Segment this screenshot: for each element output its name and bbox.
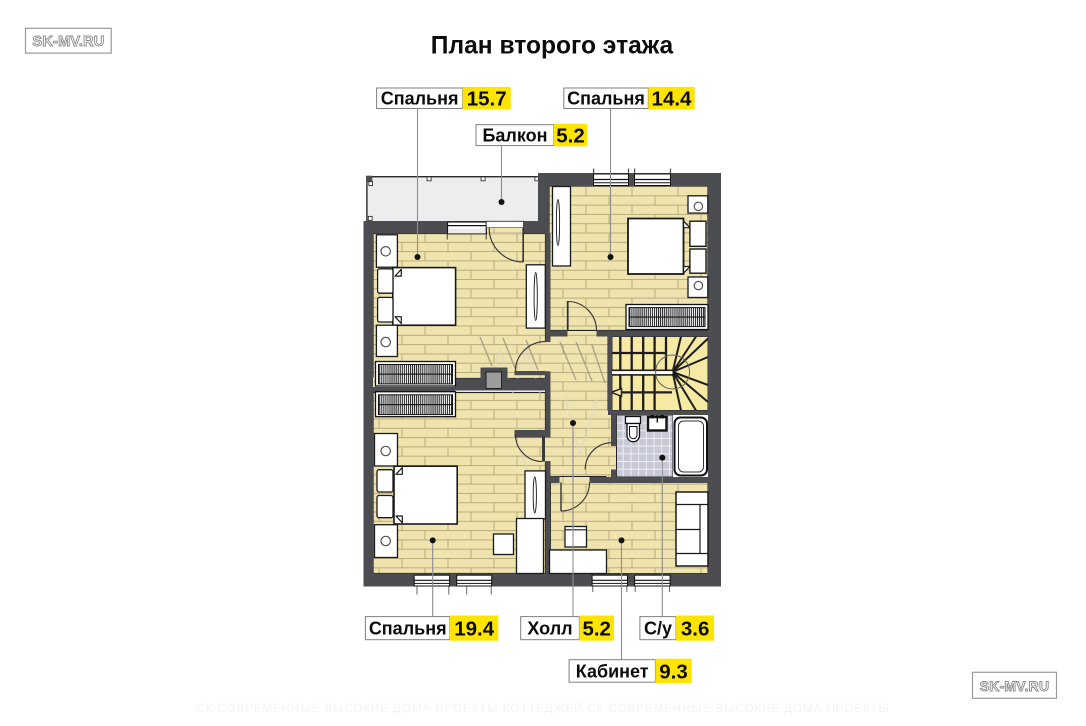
svg-text:Балкон: Балкон [482, 126, 547, 146]
svg-text:Холл: Холл [527, 619, 572, 639]
svg-text:SK-MV.RU: SK-MV.RU [980, 678, 1050, 694]
svg-text:19.4: 19.4 [454, 618, 494, 641]
svg-text:Спальня: Спальня [567, 89, 645, 109]
svg-text:СК СОВРЕМЕННЫЕ ВЫСОКИЕ ДОМА П: СК СОВРЕМЕННЫЕ ВЫСОКИЕ ДОМА ПРОЕКТЫ КОТТ… [196, 702, 889, 715]
svg-text:5.2: 5.2 [556, 125, 585, 148]
svg-text:5.2: 5.2 [582, 618, 611, 641]
svg-text:15.7: 15.7 [467, 88, 507, 111]
svg-text:Спальня: Спальня [369, 619, 447, 639]
svg-text:3.6: 3.6 [681, 618, 710, 641]
svg-text:Спальня: Спальня [381, 89, 459, 109]
svg-text:SK-MV.RU: SK-MV.RU [33, 34, 105, 50]
svg-text:14.4: 14.4 [652, 88, 692, 111]
svg-text:С/у: С/у [644, 619, 672, 639]
svg-text:9.3: 9.3 [659, 661, 688, 684]
svg-text:Кабинет: Кабинет [576, 662, 649, 682]
svg-text:План второго этажа: План второго этажа [431, 33, 674, 60]
